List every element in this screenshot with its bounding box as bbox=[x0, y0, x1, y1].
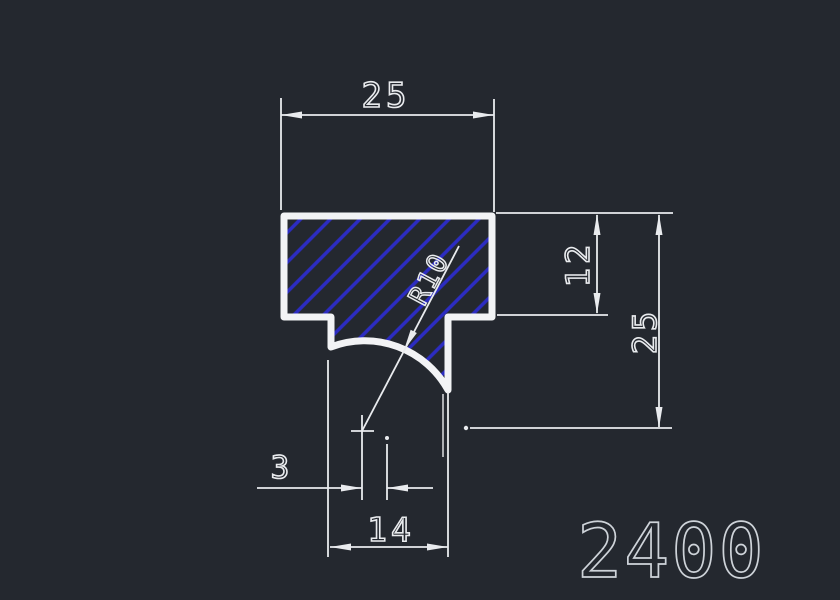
dim-top-width-label: 25 bbox=[362, 76, 411, 116]
dim-overall-height-label: 25 bbox=[626, 308, 664, 355]
cad-drawing-canvas: 25 12 25 14 bbox=[0, 0, 840, 600]
arrowhead bbox=[656, 214, 663, 235]
arrowhead bbox=[341, 485, 362, 492]
arrowhead bbox=[427, 544, 448, 551]
dim-top-width: 25 bbox=[281, 76, 494, 212]
profile-outline bbox=[284, 216, 492, 390]
arrowhead bbox=[473, 112, 494, 119]
arrowhead bbox=[387, 485, 408, 492]
arrowhead bbox=[594, 293, 601, 314]
part-number-label: 2400 bbox=[577, 507, 766, 595]
arrowhead bbox=[656, 407, 663, 428]
dim-center-offset-label: 3 bbox=[271, 450, 294, 486]
cad-viewport: 25 12 25 14 bbox=[0, 0, 840, 600]
dim-stem-width: 14 bbox=[328, 360, 448, 557]
arrowhead bbox=[281, 112, 302, 119]
dim-flange-height: 12 bbox=[496, 213, 673, 315]
dim-center-offset: 3 bbox=[257, 415, 433, 500]
dim-stem-width-label: 14 bbox=[367, 510, 415, 549]
arrowhead bbox=[330, 544, 351, 551]
dim-flange-height-label: 12 bbox=[559, 241, 597, 288]
extension-dot bbox=[464, 426, 468, 430]
extension-dot bbox=[385, 436, 389, 440]
arrowhead bbox=[594, 214, 601, 235]
